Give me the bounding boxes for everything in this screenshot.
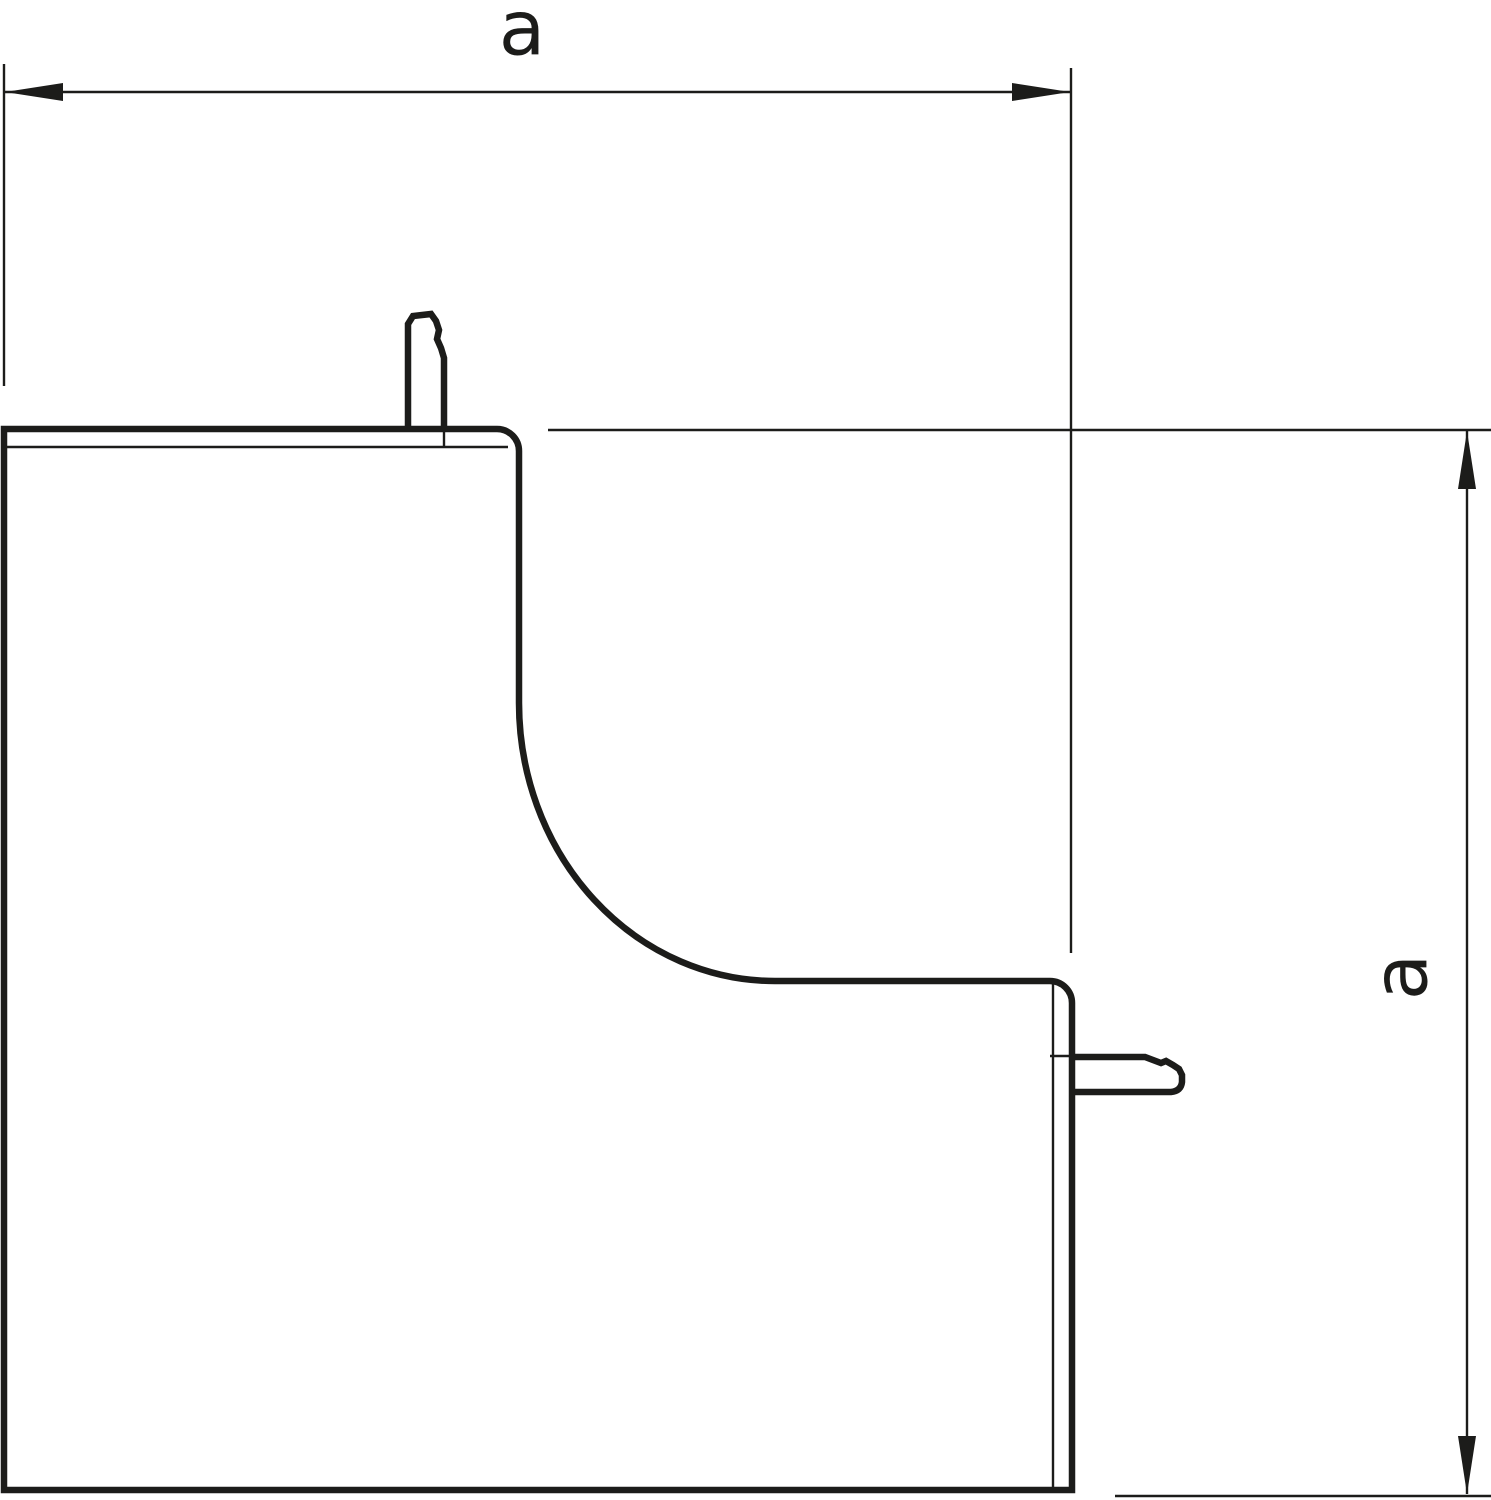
technical-drawing: a a	[0, 0, 1491, 1500]
top-clip	[408, 314, 444, 429]
arrowhead-down-icon	[1458, 1436, 1476, 1494]
part-outline	[4, 429, 1072, 1490]
dim-v-label: a	[1356, 954, 1445, 1001]
arrowhead-right-icon	[1012, 83, 1070, 101]
right-clip	[1072, 1057, 1182, 1092]
part	[4, 314, 1182, 1490]
arrowhead-left-icon	[5, 83, 63, 101]
dim-h-label: a	[499, 0, 546, 73]
arrowhead-up-icon	[1458, 431, 1476, 489]
drawing-canvas: a a	[0, 0, 1491, 1500]
